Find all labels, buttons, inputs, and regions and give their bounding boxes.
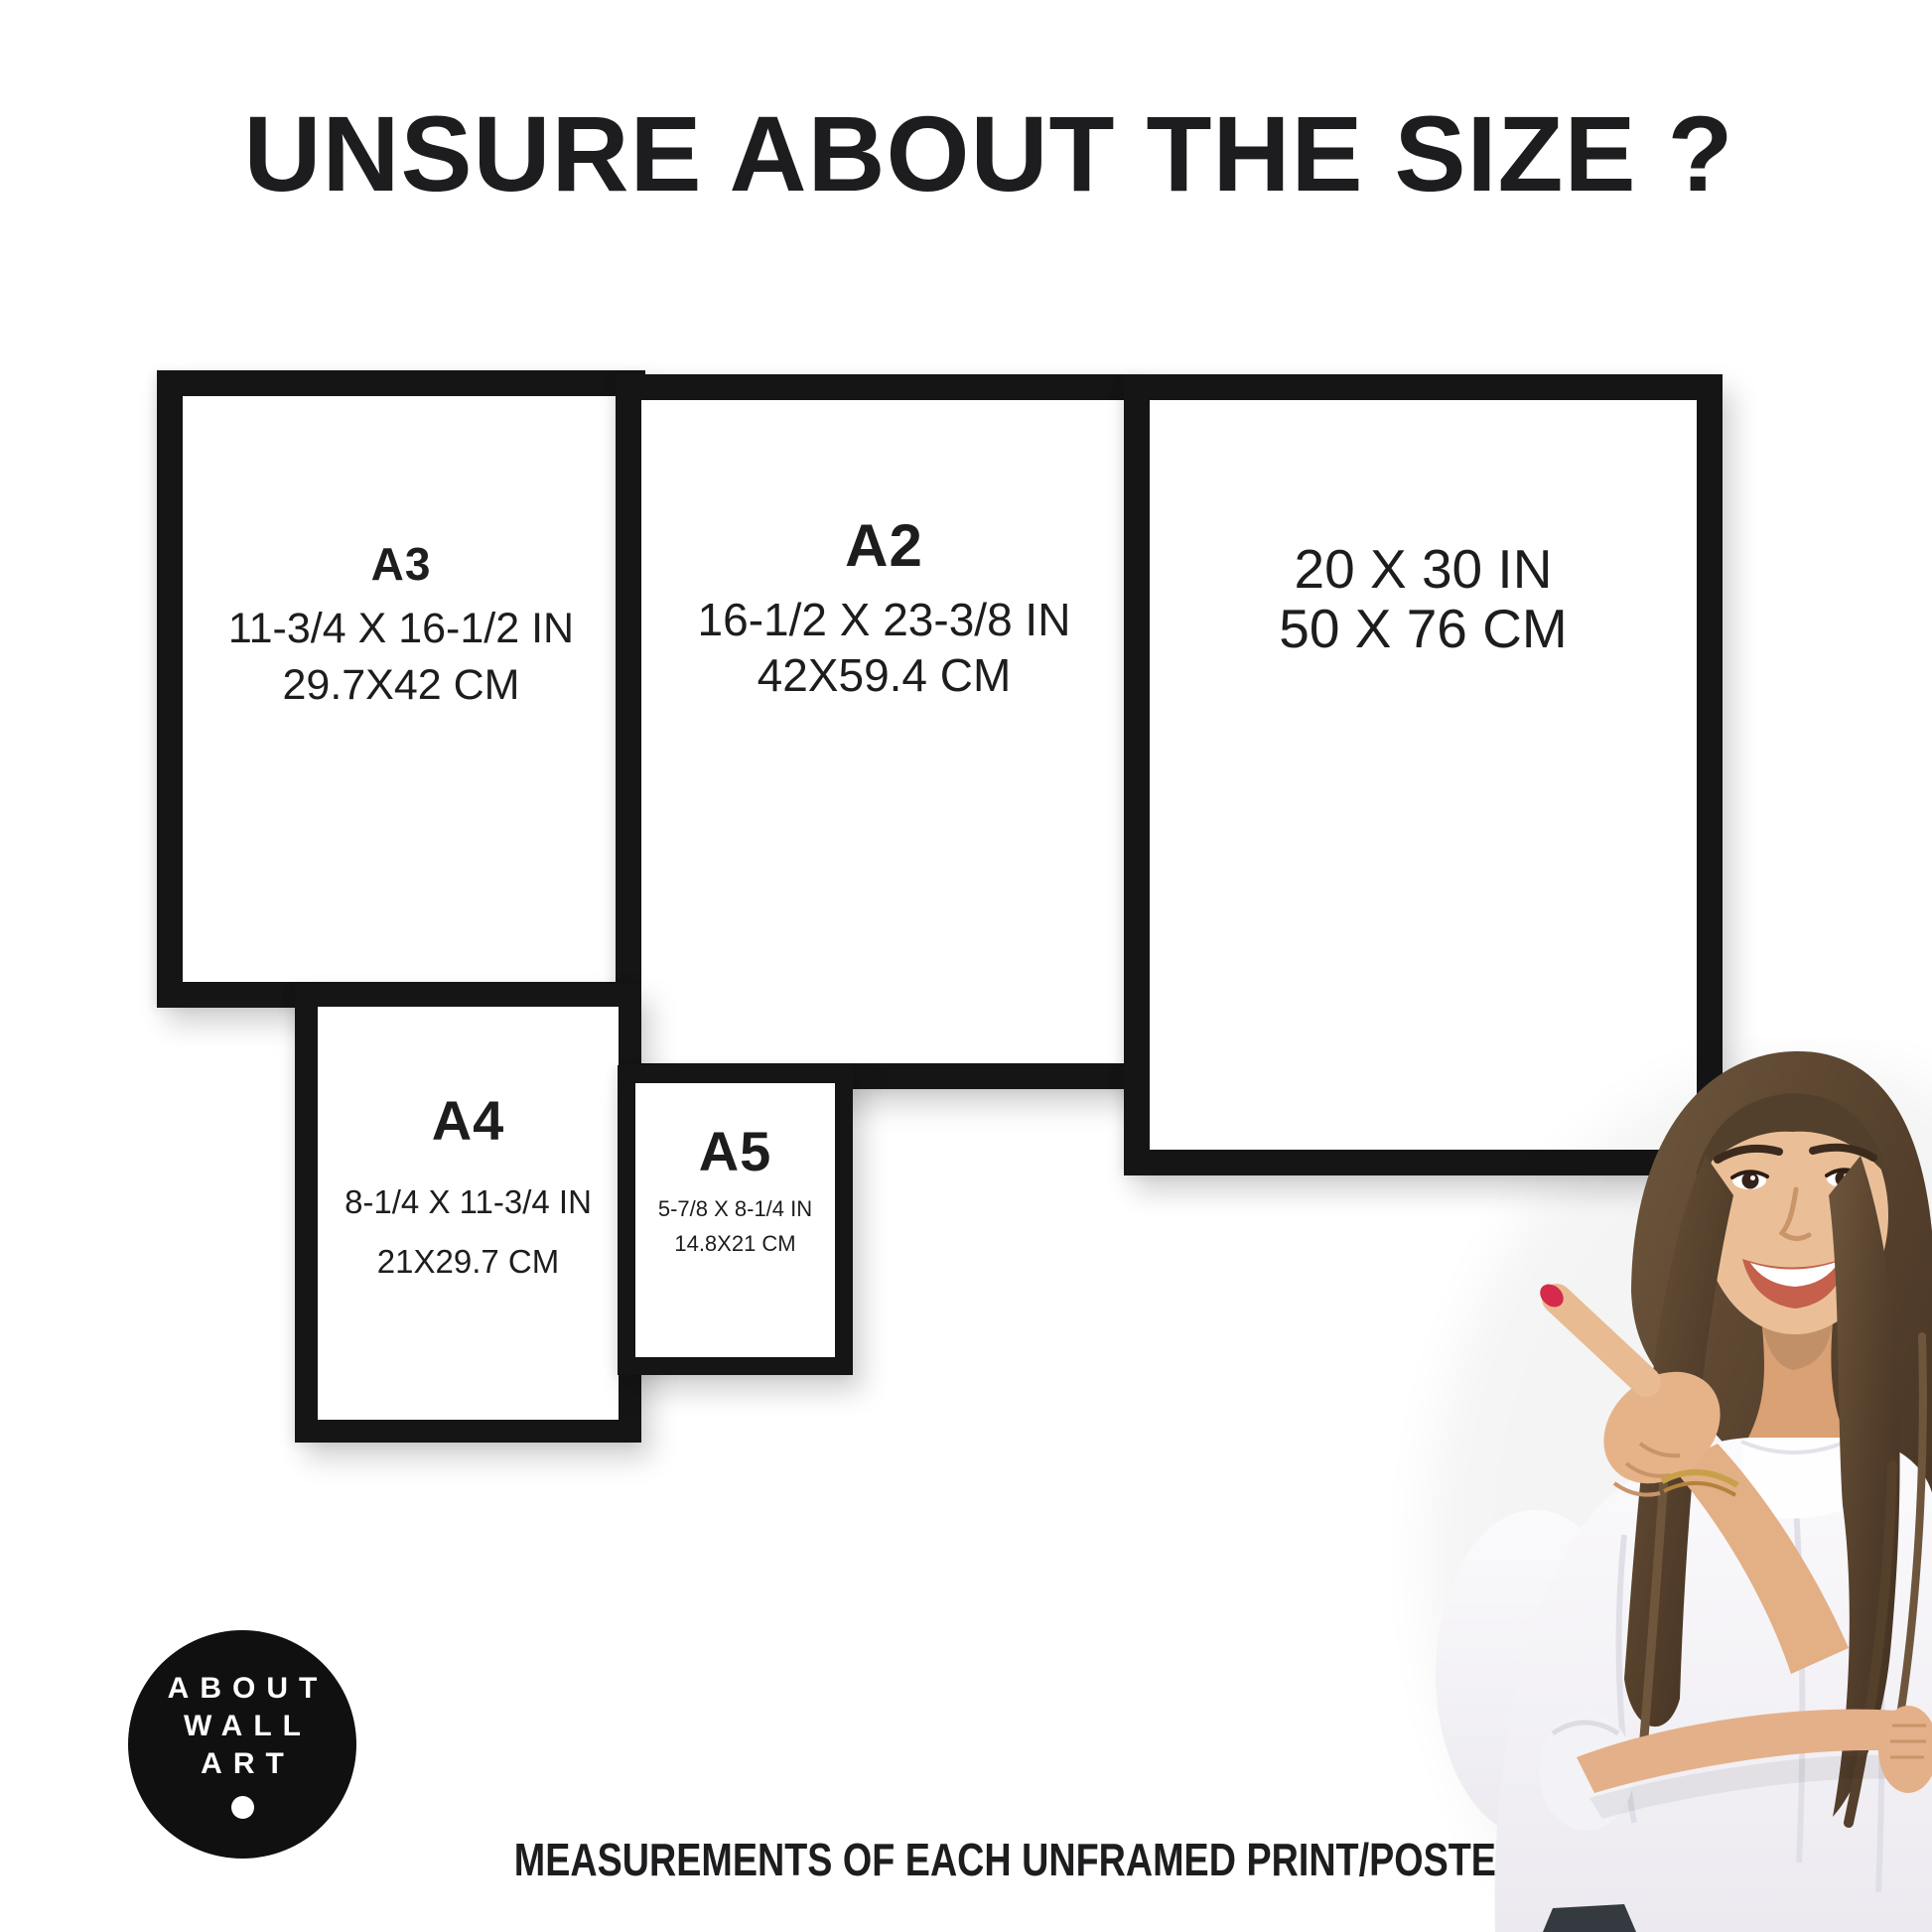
jeans xyxy=(1543,1904,1636,1932)
size-guide-poster: UNSURE ABOUT THE SIZE ? A3 11-3/4 X 16-1… xyxy=(0,0,1932,1932)
size-inches-a2: 16-1/2 X 23-3/8 IN xyxy=(641,592,1127,647)
frame-a4-text: A4 8-1/4 X 11-3/4 IN 21X29.7 CM xyxy=(318,1088,619,1292)
size-label-a5: A5 xyxy=(635,1119,835,1183)
frame-a3-text: A3 11-3/4 X 16-1/2 IN 29.7X42 CM xyxy=(183,537,620,714)
size-cm-a5: 14.8X21 CM xyxy=(635,1226,835,1261)
size-cm-a4: 21X29.7 CM xyxy=(318,1232,619,1292)
frame-a3: A3 11-3/4 X 16-1/2 IN 29.7X42 CM xyxy=(157,370,645,1008)
size-inches-20x30: 20 X 30 IN xyxy=(1150,539,1697,599)
brand-logo: ABOUT WALL ART xyxy=(128,1630,356,1859)
frame-20x30-text: 20 X 30 IN 50 X 76 CM xyxy=(1150,539,1697,658)
logo-dot-icon xyxy=(231,1796,254,1819)
frame-a2-text: A2 16-1/2 X 23-3/8 IN 42X59.4 CM xyxy=(641,511,1127,703)
size-cm-a2: 42X59.4 CM xyxy=(641,647,1127,703)
size-cm-20x30: 50 X 76 CM xyxy=(1150,599,1697,658)
logo-text-about: ABOUT xyxy=(157,1670,329,1708)
size-label-a3: A3 xyxy=(183,537,620,591)
size-cm-a3: 29.7X42 CM xyxy=(183,657,620,714)
logo-text-art: ART xyxy=(190,1745,295,1783)
frame-a5-text: A5 5-7/8 X 8-1/4 IN 14.8X21 CM xyxy=(635,1119,835,1261)
woman-photo xyxy=(1197,1038,1932,1932)
size-inches-a4: 8-1/4 X 11-3/4 IN xyxy=(318,1173,619,1232)
logo-text-wall: WALL xyxy=(173,1708,312,1745)
size-inches-a5: 5-7/8 X 8-1/4 IN xyxy=(635,1191,835,1226)
frame-a5: A5 5-7/8 X 8-1/4 IN 14.8X21 CM xyxy=(618,1065,853,1375)
size-label-a4: A4 xyxy=(318,1088,619,1153)
frame-a4: A4 8-1/4 X 11-3/4 IN 21X29.7 CM xyxy=(295,984,641,1443)
size-label-a2: A2 xyxy=(641,511,1127,580)
footer-caption: MEASUREMENTS OF EACH UNFRAMED PRINT/POST… xyxy=(514,1833,1263,1886)
frame-a2: A2 16-1/2 X 23-3/8 IN 42X59.4 CM xyxy=(616,374,1153,1089)
size-inches-a3: 11-3/4 X 16-1/2 IN xyxy=(183,601,620,657)
page-title: UNSURE ABOUT THE SIZE ? xyxy=(0,91,1932,215)
